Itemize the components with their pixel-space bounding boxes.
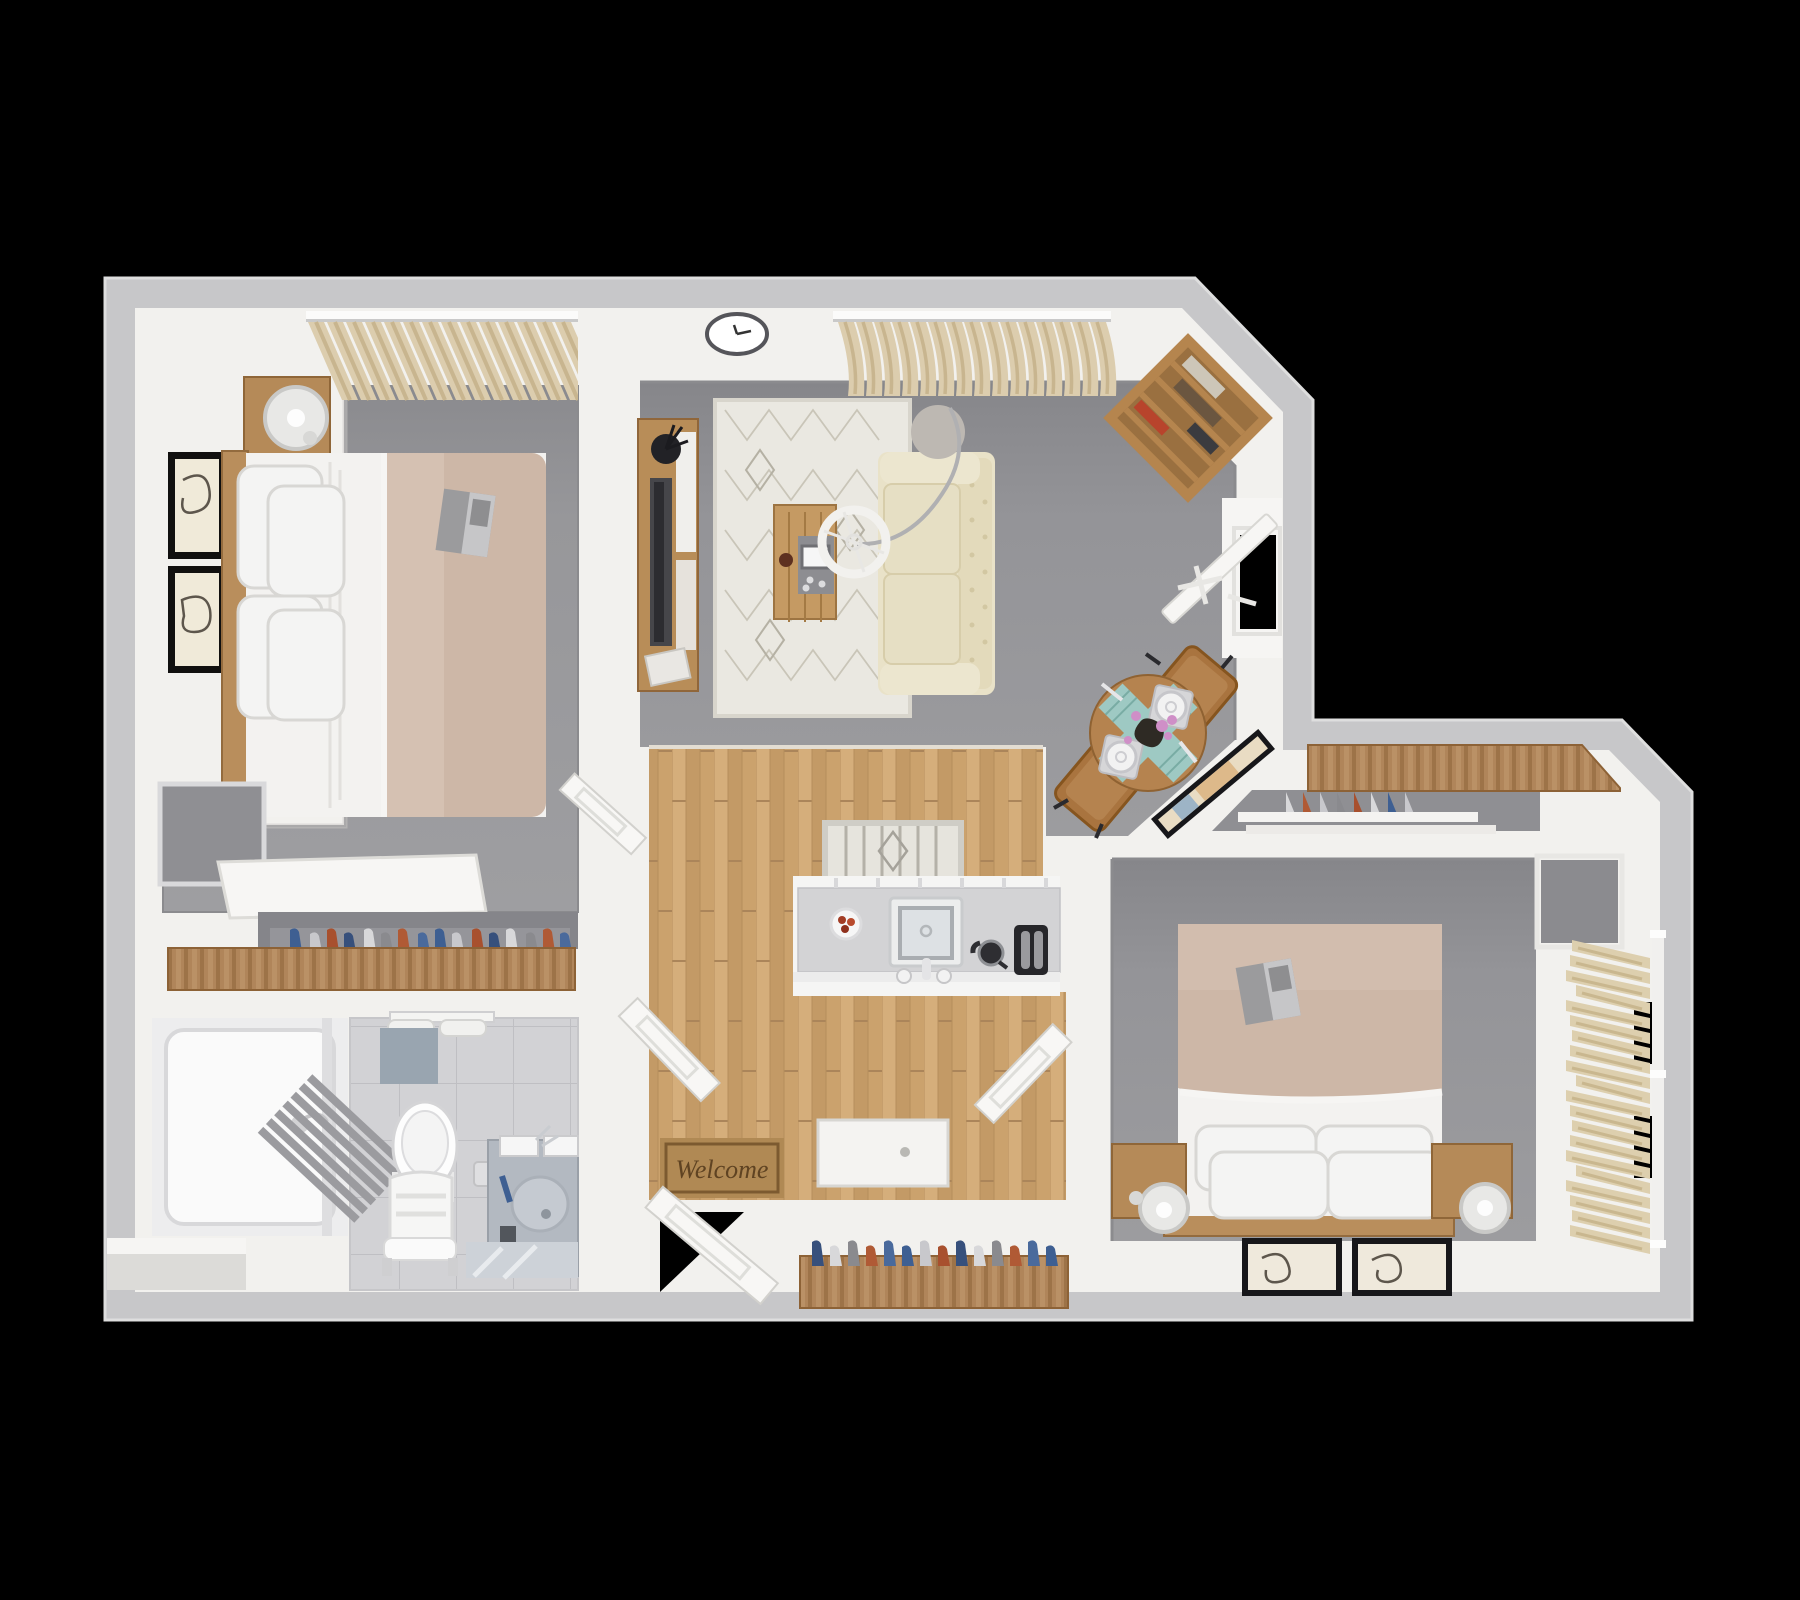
svg-text:Welcome: Welcome <box>676 1155 769 1184</box>
